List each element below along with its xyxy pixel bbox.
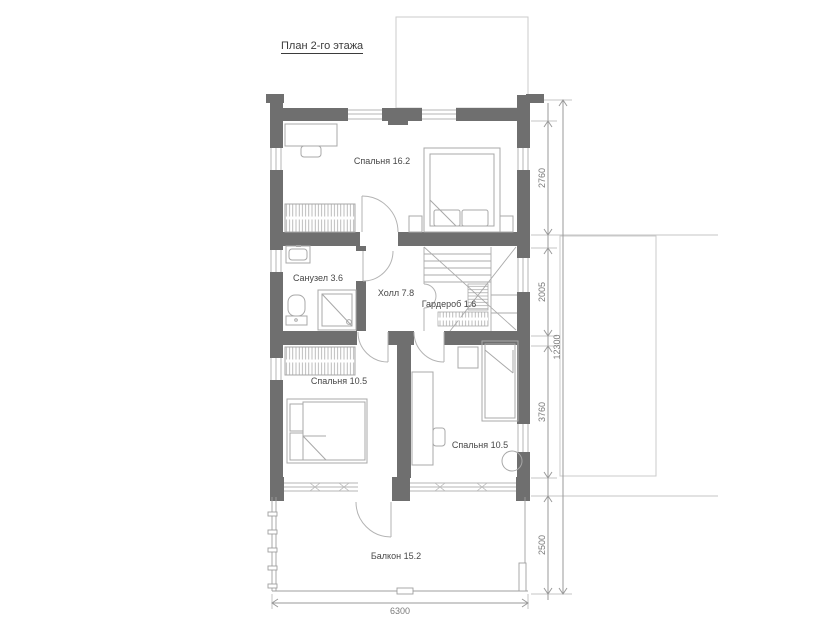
window-icon	[516, 424, 531, 452]
balcony-railing	[268, 497, 528, 594]
wardrobe-icon	[285, 347, 355, 375]
window-icon	[516, 258, 531, 292]
single-bed-icon	[482, 341, 518, 421]
room-label-bedroom-right: Спальня 10.5	[452, 440, 508, 450]
dim-bottom-width: 6300	[390, 606, 410, 616]
room-label-bathroom: Санузел 3.6	[293, 273, 343, 283]
desk-icon	[412, 372, 433, 465]
bathroom-fixtures	[286, 246, 356, 330]
french-window-band	[410, 483, 516, 491]
door-bedroom-right	[414, 332, 444, 362]
furniture-bedroom-top	[285, 124, 513, 232]
window-icon	[422, 107, 456, 122]
window-icon	[269, 358, 284, 380]
dim-seg-2: 2005	[537, 282, 547, 302]
chair-icon	[433, 428, 445, 446]
floor-plan-drawing: 2760 2005 3760 2500 12300 6300 Спальня 1…	[0, 0, 840, 630]
floor-plan-page: План 2-го этажа	[0, 0, 840, 630]
nightstand-icon	[458, 347, 478, 368]
double-bed-icon	[287, 399, 367, 463]
shower-icon	[318, 290, 356, 330]
dim-seg-3: 3760	[537, 402, 547, 422]
dim-seg-4: 2500	[537, 535, 547, 555]
dim-seg-1: 2760	[537, 168, 547, 188]
nightstand-icon	[500, 216, 513, 232]
window-icon	[348, 107, 382, 122]
door-balcony	[356, 502, 391, 537]
room-label-hall: Холл 7.8	[378, 288, 414, 298]
roof-outline-top	[396, 17, 528, 108]
door-bathroom	[363, 251, 393, 281]
door-bedroom-top	[362, 196, 398, 232]
wall-top	[270, 108, 530, 121]
desk-icon	[285, 124, 337, 146]
dim-total-height: 12300	[552, 334, 562, 359]
room-label-balcony: Балкон 15.2	[371, 551, 421, 561]
pillow-icon	[290, 404, 303, 431]
nightstand-icon	[409, 216, 422, 232]
dimension-labels-right: 2760 2005 3760 2500 12300	[537, 168, 562, 555]
toilet-icon	[286, 295, 307, 325]
door-bedroom-left	[358, 332, 388, 362]
pillow-icon	[290, 433, 303, 460]
furniture-bedroom-right	[412, 341, 522, 471]
roof-outline-right	[560, 236, 656, 476]
french-window-band	[284, 483, 358, 491]
window-icon	[269, 148, 284, 170]
sink-icon	[286, 246, 310, 263]
furniture-bedroom-left	[285, 347, 367, 463]
room-label-bedroom-top: Спальня 16.2	[354, 156, 410, 166]
chair-icon	[301, 146, 321, 157]
window-icon	[516, 148, 531, 170]
room-label-wardrobe: Гардероб 1.6	[422, 299, 477, 309]
room-label-bedroom-left: Спальня 10.5	[311, 376, 367, 386]
window-icon	[269, 250, 284, 272]
double-bed-icon	[409, 148, 513, 232]
wardrobe-icon	[285, 204, 355, 232]
